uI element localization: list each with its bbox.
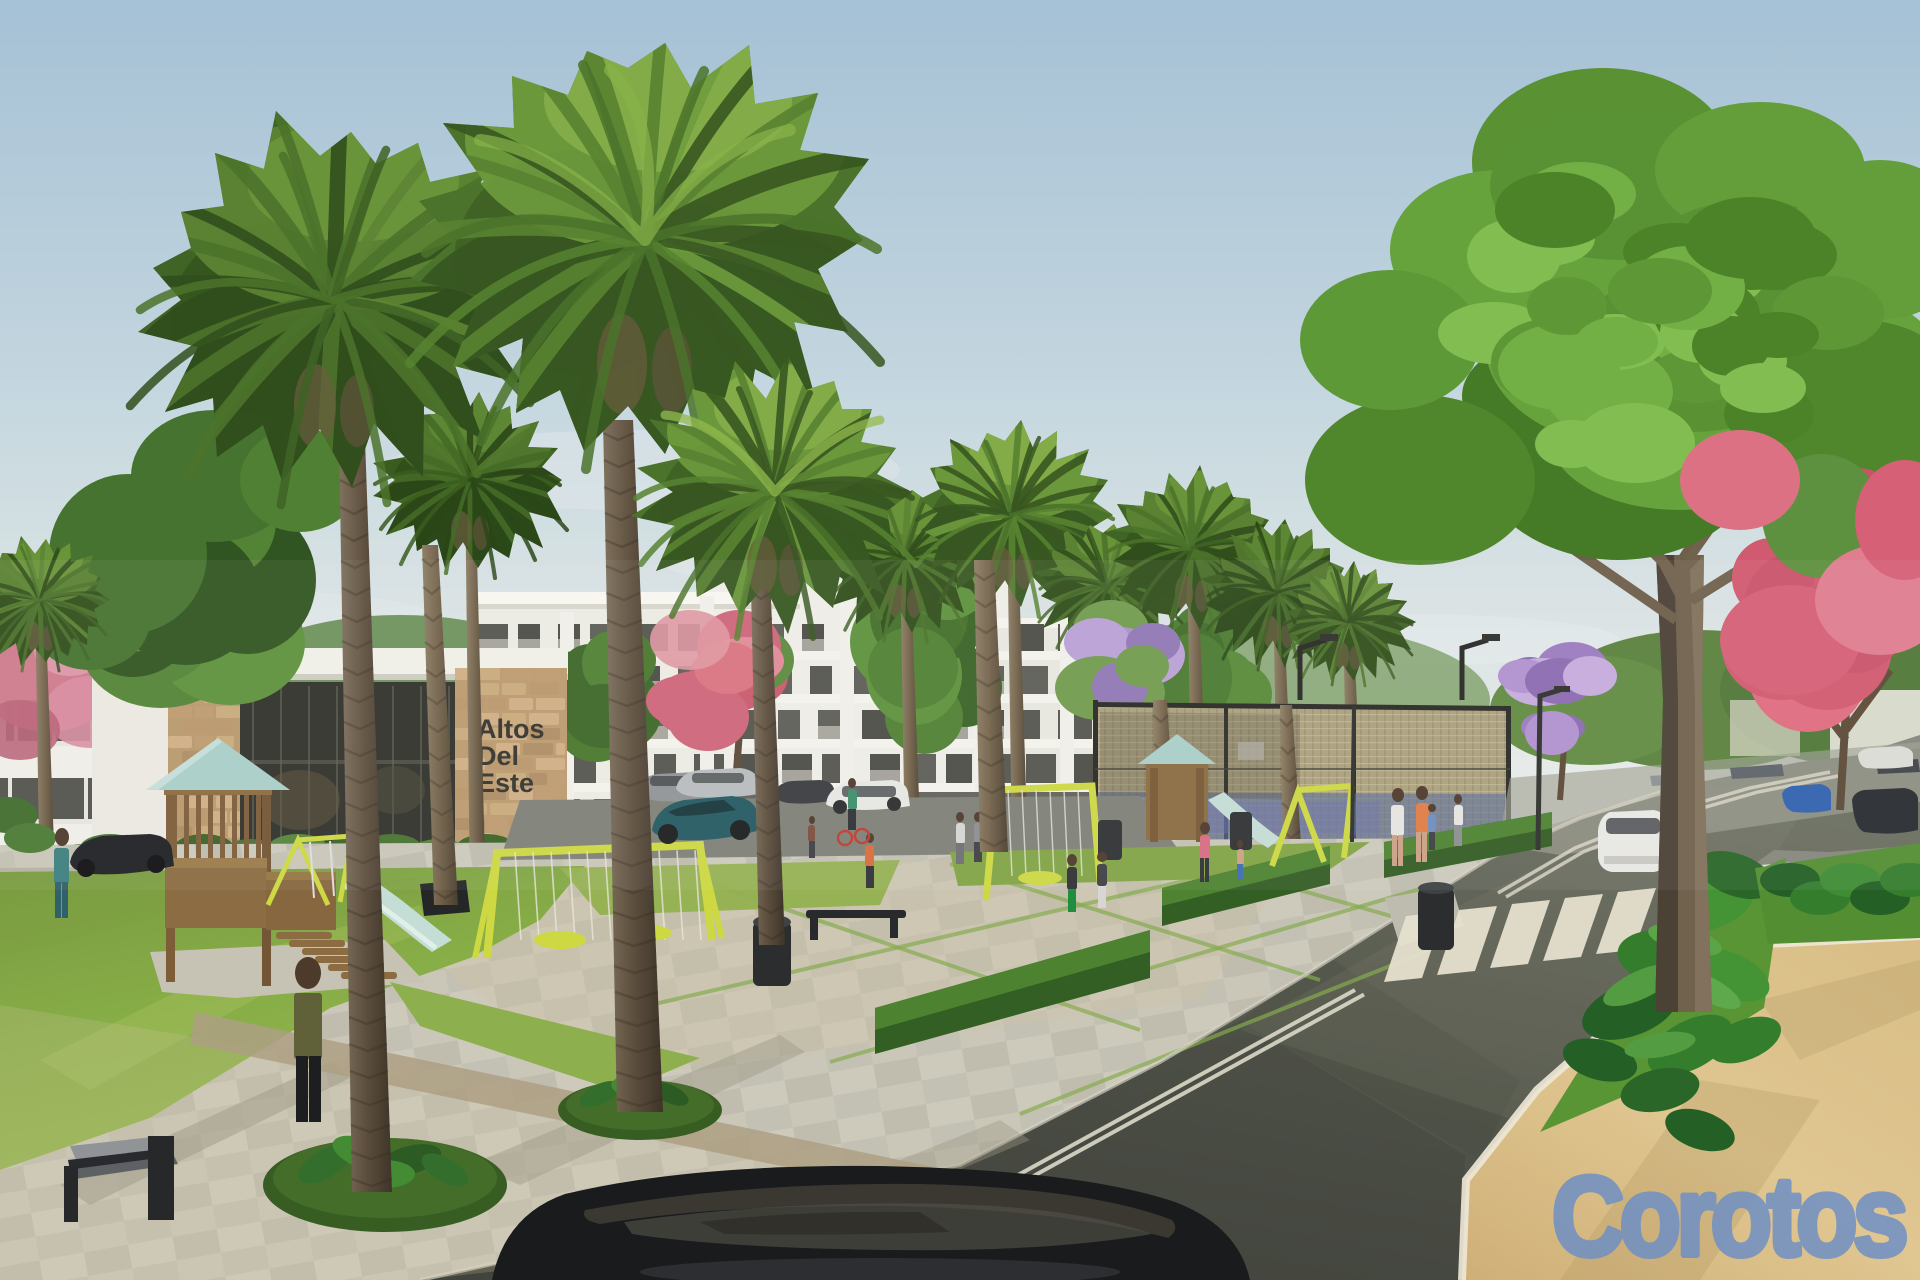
svg-text:Corotos: Corotos (1552, 1154, 1905, 1279)
